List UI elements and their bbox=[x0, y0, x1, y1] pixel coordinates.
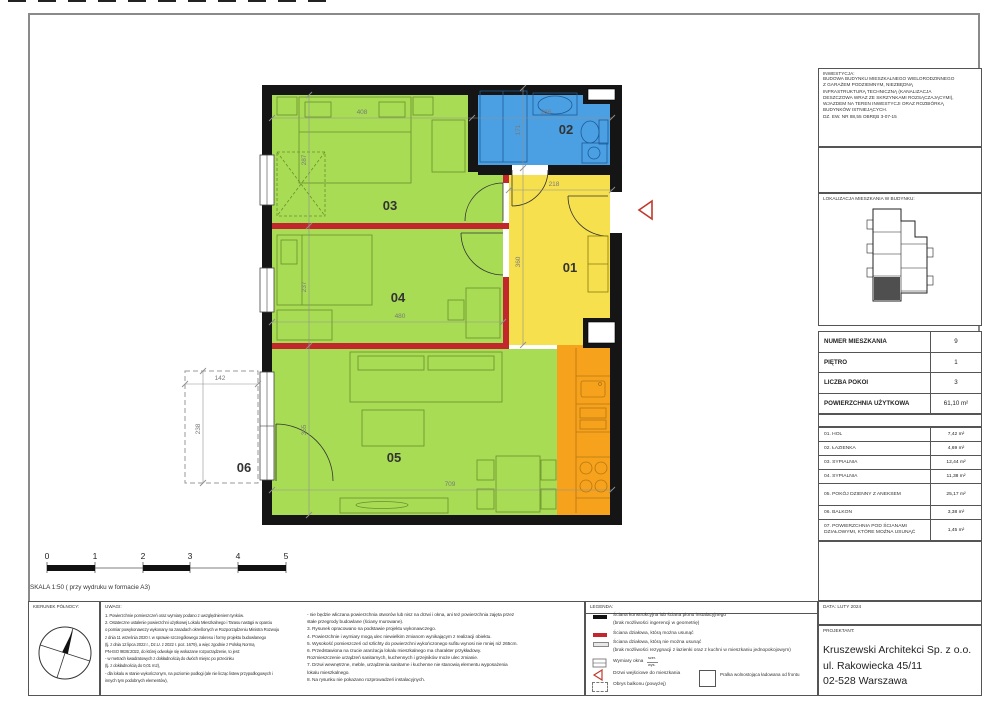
designer-box: PROJEKTANT: Kruszewski Architekci Sp. z … bbox=[818, 625, 982, 696]
room-label-01: 01 bbox=[563, 260, 577, 275]
north-label: KIERUNEK PÓŁNOCY: bbox=[29, 602, 99, 609]
dim-287: 287 bbox=[301, 154, 308, 165]
drawing-sheet: 408 286 287 237 355 480 709 218 360 171 … bbox=[0, 0, 1000, 706]
shaft-niche-mid bbox=[588, 322, 615, 343]
room-areas-table: 01. HOL 7,42 m² 02. ŁAZIENKA 4,69 m² 03.… bbox=[818, 427, 982, 541]
svg-text:5: 5 bbox=[284, 551, 289, 561]
dim-286: 286 bbox=[541, 109, 552, 116]
date-label: DATA: bbox=[823, 604, 836, 609]
table-row: 06. BALKON 3,38 m² bbox=[819, 506, 981, 520]
notes-box: UWAGI: 1. Powierzchnie pomieszczeń oraz … bbox=[100, 601, 585, 696]
table-row: 04. SYPIALNIA 11,38 m² bbox=[819, 470, 981, 484]
lokalizacja-label: LOKALIZACJA MIESZKANIA W BUDYNKU: bbox=[819, 194, 981, 201]
lokalizacja-box: LOKALIZACJA MIESZKANIA W BUDYNKU: bbox=[818, 193, 982, 326]
structural-wall-swatch bbox=[593, 615, 607, 619]
notes-column-2: - nie będzie wliczana powierzchnia otwor… bbox=[307, 612, 518, 684]
inwestycja-label: INWESTYCJA: bbox=[819, 69, 981, 76]
notes-column-1: 1. Powierzchnie pomieszczeń oraz wymiary… bbox=[105, 612, 279, 684]
fixed-partition-swatch bbox=[593, 642, 609, 647]
room-label-06: 06 bbox=[237, 460, 251, 475]
table-row: NUMER MIESZKANIA 9 bbox=[819, 332, 981, 353]
table-row: 05. POKÓJ DZIENNY Z ANEKSEM 25,17 m² bbox=[819, 484, 981, 506]
table-row: 01. HOL 7,42 m² bbox=[819, 428, 981, 442]
entrance-arrow-icon bbox=[639, 201, 652, 219]
dim-237: 237 bbox=[301, 281, 308, 292]
designer-name: Kruszewski Architekci Sp. z o.o. bbox=[823, 643, 981, 659]
notes-label: UWAGI: bbox=[101, 602, 584, 609]
highlighted-unit bbox=[874, 277, 900, 300]
building-locator bbox=[819, 201, 981, 319]
washer-icon bbox=[699, 670, 716, 687]
table-row: PIĘTRO 1 bbox=[819, 353, 981, 374]
dim-238: 238 bbox=[195, 423, 202, 434]
scale-caption: SKALA 1:50 ( przy wydruku w formacie A3) bbox=[30, 584, 150, 591]
dim-408: 408 bbox=[357, 109, 368, 116]
svg-text:2: 2 bbox=[141, 551, 146, 561]
table-row: 03. SYPIALNIA 12,44 m² bbox=[819, 456, 981, 470]
north-direction-box: KIERUNEK PÓŁNOCY: bbox=[28, 601, 100, 696]
removable-wall-swatch bbox=[593, 633, 607, 637]
table-row: POWIERZCHNIA UŻYTKOWA 61,10 m² bbox=[819, 394, 981, 414]
designer-city: 02-528 Warszawa bbox=[823, 674, 981, 690]
svg-text:3: 3 bbox=[188, 551, 193, 561]
designer-street: ul. Rakowiecka 45/11 bbox=[823, 659, 981, 675]
apartment-info-table: NUMER MIESZKANIA 9 PIĘTRO 1 LICZBA POKOI… bbox=[818, 331, 982, 414]
shaft-niche-top bbox=[588, 89, 615, 100]
empty-row bbox=[818, 414, 982, 427]
scale-bar: 0 1 2 3 4 5 SKALA 1:50 ( przy wydruku w … bbox=[30, 551, 289, 591]
date-box: DATA: LUTY 2024 bbox=[818, 601, 982, 625]
window-icon bbox=[592, 657, 608, 669]
table-row: LICZBA POKOI 3 bbox=[819, 373, 981, 394]
room-label-03: 03 bbox=[383, 198, 397, 213]
legend-box: LEGENDA: Ściana konstrukcyjna lub ściana… bbox=[585, 601, 818, 696]
table-row: 02. ŁAZIENKA 4,69 m² bbox=[819, 442, 981, 456]
dim-360: 360 bbox=[515, 256, 522, 267]
svg-text:4: 4 bbox=[236, 551, 241, 561]
empty-box-1 bbox=[818, 147, 982, 193]
room-label-02: 02 bbox=[559, 122, 573, 137]
balcony-outline-icon bbox=[592, 682, 608, 692]
room-label-05: 05 bbox=[387, 450, 401, 465]
compass-icon bbox=[29, 609, 101, 691]
entrance-door-icon bbox=[592, 669, 604, 681]
inwestycja-box: INWESTYCJA: BUDOWA BUDYNKU MIESZKALNEGO … bbox=[818, 68, 982, 147]
dim-709: 709 bbox=[445, 481, 456, 488]
svg-text:0: 0 bbox=[45, 551, 50, 561]
dim-218: 218 bbox=[549, 181, 560, 188]
dim-171: 171 bbox=[515, 124, 522, 135]
room-label-04: 04 bbox=[391, 290, 406, 305]
dim-142: 142 bbox=[215, 375, 226, 382]
dim-480: 480 bbox=[395, 313, 406, 320]
kitchen-annex-area bbox=[557, 345, 610, 515]
dim-355: 355 bbox=[301, 424, 308, 435]
date-value: LUTY 2024 bbox=[837, 604, 861, 609]
empty-box-2 bbox=[818, 541, 982, 601]
designer-label: PROJEKTANT: bbox=[819, 626, 981, 633]
table-row: 07. POWIERZCHNIA POD ŚCIANAMI DZIAŁOWYMI… bbox=[819, 520, 981, 540]
svg-text:1: 1 bbox=[93, 551, 98, 561]
